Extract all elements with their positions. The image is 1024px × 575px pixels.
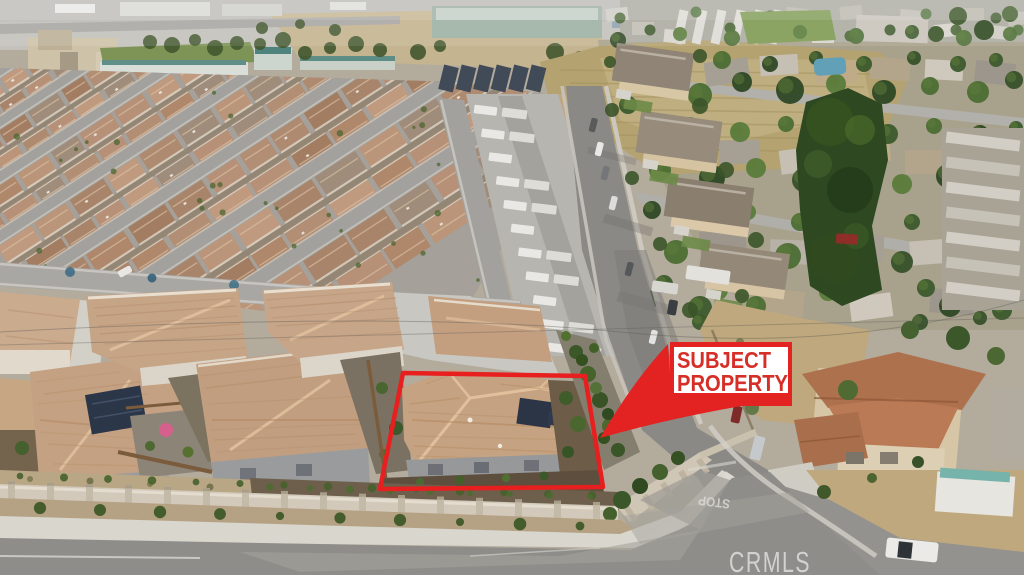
svg-text:CRMLS: CRMLS	[729, 547, 811, 575]
svg-text:PROPERTY: PROPERTY	[677, 370, 788, 396]
